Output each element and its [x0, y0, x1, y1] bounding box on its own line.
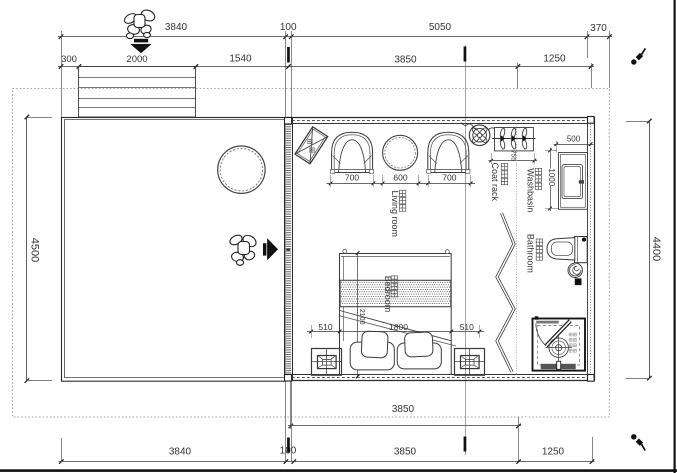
svg-text:3850: 3850 — [392, 404, 415, 415]
svg-text:510: 510 — [460, 322, 474, 332]
svg-text:2100: 2100 — [358, 309, 365, 325]
svg-text:3850: 3850 — [394, 55, 417, 66]
svg-text:510: 510 — [318, 322, 332, 332]
svg-text:Coat rack: Coat rack — [490, 163, 500, 202]
svg-text:1540: 1540 — [229, 54, 252, 65]
svg-text:3840: 3840 — [169, 447, 192, 458]
svg-text:700: 700 — [345, 173, 359, 183]
svg-text:500: 500 — [567, 134, 581, 143]
svg-text:2000: 2000 — [126, 54, 147, 65]
svg-text:1800: 1800 — [389, 322, 408, 332]
svg-text:600: 600 — [393, 173, 407, 183]
svg-text:Living room: Living room — [390, 191, 400, 238]
svg-text:5050: 5050 — [429, 22, 452, 33]
svg-text:1250: 1250 — [542, 447, 565, 458]
svg-text:1000: 1000 — [547, 168, 556, 186]
svg-text:4400: 4400 — [650, 237, 662, 261]
svg-text:300: 300 — [61, 54, 77, 65]
svg-text:370: 370 — [590, 23, 607, 34]
svg-text:Washbasin: Washbasin — [526, 168, 536, 212]
svg-text:Bedroom: Bedroom — [383, 276, 393, 313]
svg-text:755: 755 — [510, 150, 517, 161]
svg-text:700: 700 — [442, 173, 456, 183]
svg-text:Bathroom: Bathroom — [526, 234, 536, 273]
svg-text:3840: 3840 — [165, 22, 188, 33]
svg-text:1250: 1250 — [543, 54, 566, 65]
svg-text:100: 100 — [280, 22, 297, 33]
svg-text:3850: 3850 — [394, 447, 417, 458]
svg-text:4500: 4500 — [29, 238, 41, 262]
